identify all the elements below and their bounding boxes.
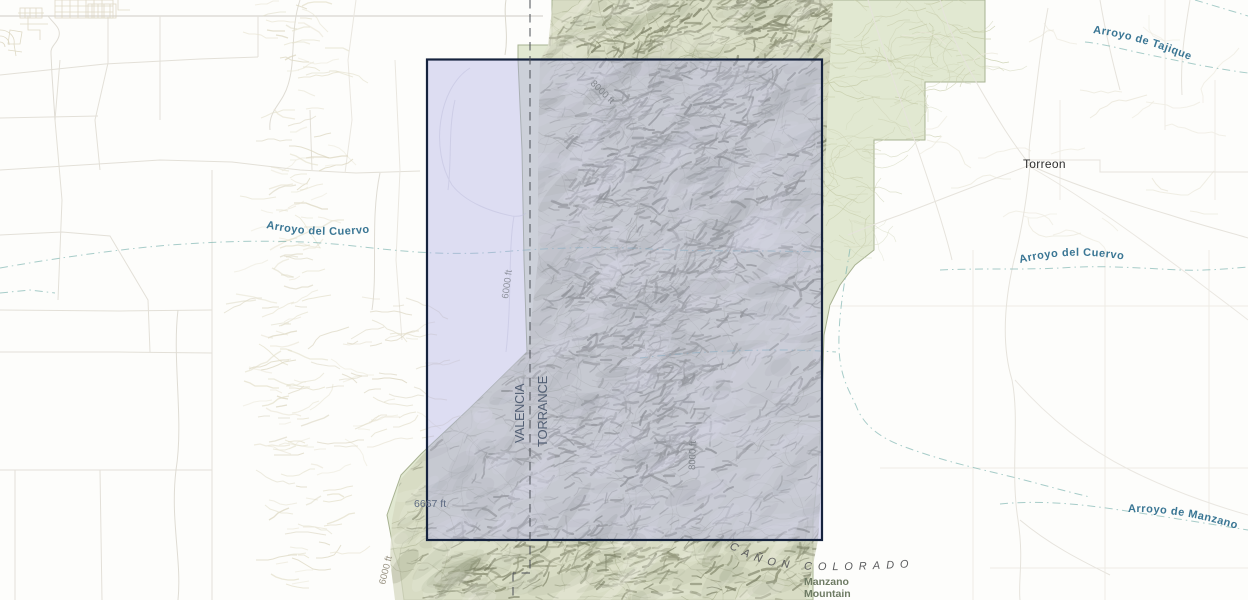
svg-text:6667 ft: 6667 ft	[414, 498, 446, 510]
svg-text:Torreon: Torreon	[1023, 157, 1066, 171]
svg-text:TORRANCE: TORRANCE	[535, 375, 550, 447]
svg-text:8000 ft: 8000 ft	[687, 440, 699, 470]
svg-text:VALENCIA: VALENCIA	[513, 383, 527, 443]
svg-text:Manzano: Manzano	[804, 576, 849, 588]
svg-text:Mountain: Mountain	[804, 588, 851, 600]
